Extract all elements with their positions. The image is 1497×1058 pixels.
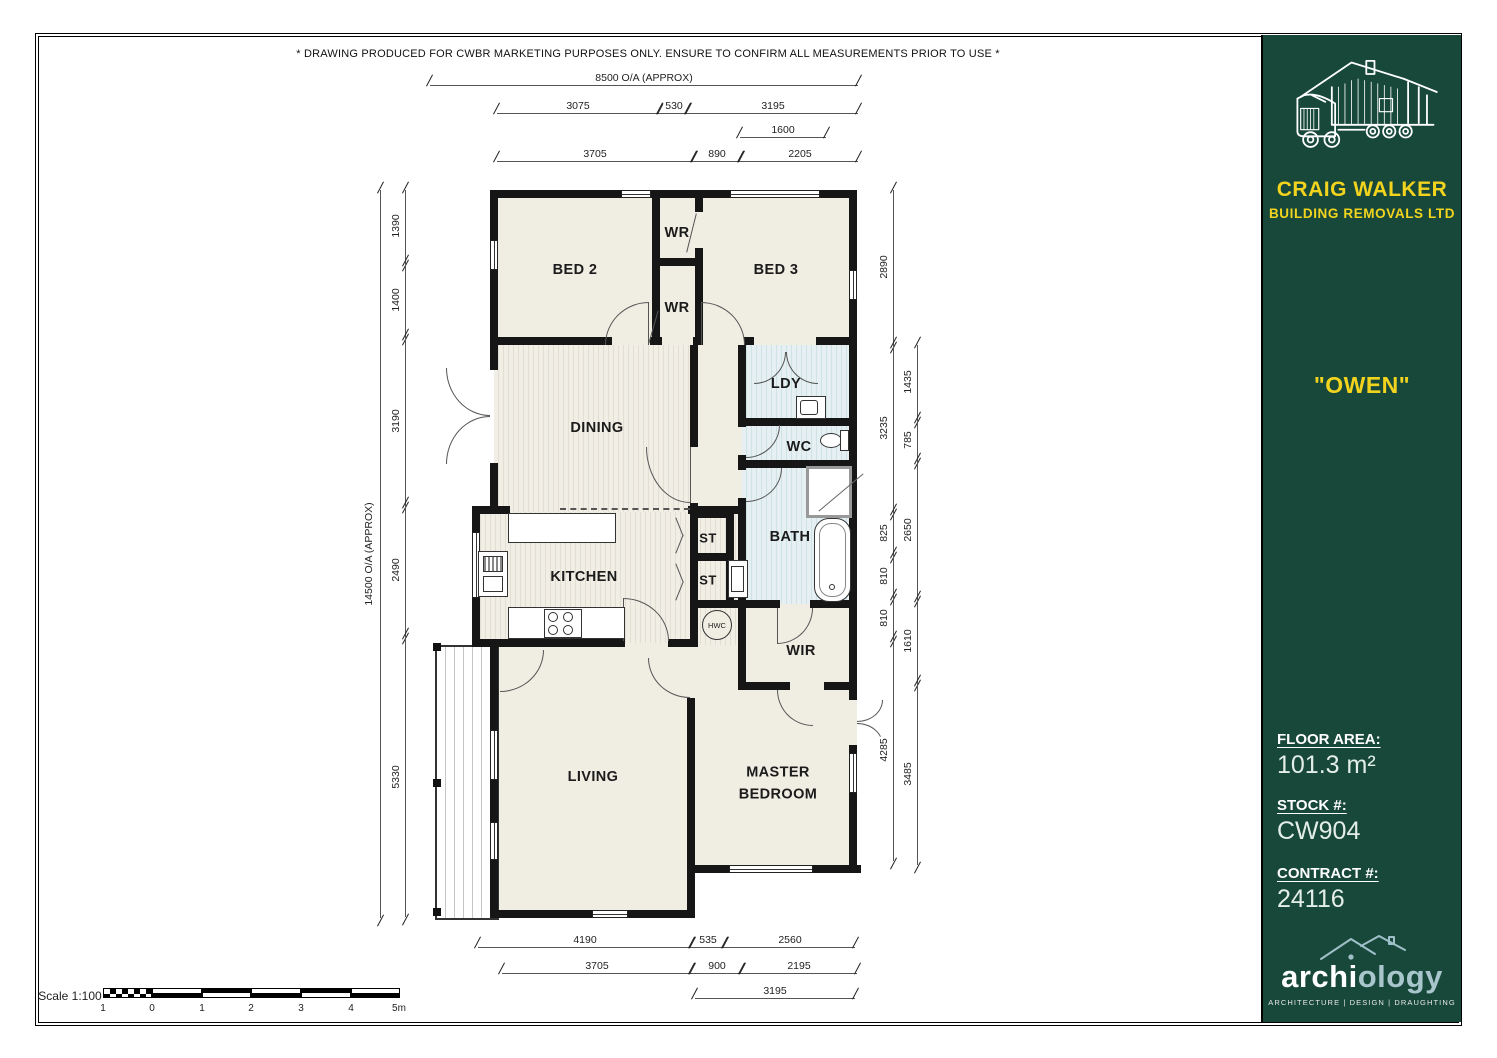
g: [1338, 79, 1397, 124]
dlab: 1600: [769, 124, 796, 136]
dim-v: [917, 599, 918, 683]
dim-v: [405, 505, 406, 636]
fx: [483, 576, 503, 592]
room-label-living: LIVING: [568, 769, 619, 785]
archiology-wordmark: archiology: [1263, 959, 1461, 995]
wall: [490, 910, 592, 918]
sb-seg: [202, 988, 251, 998]
dim-v: [893, 639, 894, 861]
wall: [490, 860, 498, 918]
shower: [806, 466, 852, 518]
window: [592, 910, 628, 918]
dlab: 3195: [761, 985, 788, 997]
leaf: [690, 447, 691, 503]
dimension-label: 8500 O/A (APPROX): [593, 72, 694, 84]
contract-label: CONTRACT #:: [1277, 865, 1379, 882]
span: archi: [1281, 959, 1358, 994]
circle: [1367, 125, 1379, 137]
kitchen-bench: [508, 513, 616, 543]
dlab-v: 2490: [390, 556, 402, 583]
company-name: CRAIG WALKER: [1263, 178, 1461, 202]
sb-num: 4: [348, 1003, 354, 1014]
room-label-dining: DINING: [570, 420, 623, 436]
wall: [695, 198, 703, 212]
dlab-v: 3190: [390, 407, 402, 434]
dlab: 4190: [571, 934, 598, 946]
g: [1321, 936, 1405, 959]
dlab-v: 3485: [902, 760, 914, 787]
wall: [626, 910, 695, 918]
toilet: [820, 433, 842, 448]
window: [729, 865, 813, 873]
dlab-v: 3235: [878, 414, 890, 441]
floor-area-value: 101.3 m²: [1277, 751, 1376, 780]
dlab: 890: [706, 148, 728, 160]
window: [849, 753, 857, 793]
title-block-panel: CRAIG WALKER BUILDING REMOVALS LTD "OWEN…: [1261, 35, 1461, 1022]
bedrooms-floor: [494, 194, 857, 345]
circle: [1370, 129, 1375, 134]
dim-v: [917, 345, 918, 420]
dim-h: [694, 161, 741, 162]
dlab: 3075: [564, 100, 591, 112]
wall: [738, 608, 746, 690]
dlab-v: 825: [878, 522, 890, 544]
dashed-opening: [560, 508, 690, 510]
floor-area-label: FLOOR AREA:: [1277, 731, 1381, 748]
fx: [563, 625, 573, 635]
dim-line: [430, 85, 858, 86]
wall: [476, 639, 625, 647]
company-logo-truck-house-icon: [1281, 49, 1445, 167]
window: [490, 822, 498, 860]
circle: [1403, 129, 1408, 134]
wall: [687, 698, 695, 914]
room-label-bed3: BED 3: [754, 262, 799, 278]
wall: [738, 345, 746, 427]
deck-post: [433, 908, 441, 916]
wall: [490, 345, 498, 370]
wall: [490, 270, 498, 345]
sb-seg: [351, 988, 400, 998]
room-label-wr-top: WR: [665, 225, 690, 241]
dlab: 535: [697, 934, 719, 946]
fx: [548, 625, 558, 635]
polyline: [1301, 62, 1404, 96]
room-label-wc: WC: [787, 439, 812, 455]
window: [621, 190, 651, 198]
window: [730, 190, 820, 198]
hwc-cylinder: HWC: [702, 610, 732, 640]
wall: [744, 337, 754, 345]
dlab-v: 1435: [902, 368, 914, 395]
dlab-v: 810: [878, 565, 890, 587]
dlab-v: 14500 O/A (APPROX): [363, 500, 375, 607]
g: [1297, 61, 1436, 147]
wall: [742, 682, 790, 690]
stock-value: CW904: [1277, 817, 1360, 846]
wall: [690, 345, 698, 447]
dim-h: [497, 161, 694, 162]
dim-h: [725, 947, 855, 948]
sb-num: 2: [248, 1003, 254, 1014]
dim-h: [692, 973, 742, 974]
company-subtitle: BUILDING REMOVALS LTD: [1263, 206, 1461, 221]
dim-h: [688, 113, 858, 114]
room-label-st2: ST: [699, 573, 716, 588]
span: ology: [1358, 959, 1443, 994]
dlab-v: 5330: [390, 763, 402, 790]
circle: [1308, 137, 1314, 143]
dlab: 900: [706, 960, 728, 972]
dlab-v: 1390: [390, 212, 402, 239]
sb-seg: [301, 988, 351, 998]
sb-seg: [152, 988, 202, 998]
scale-label: Scale 1:100: [36, 989, 103, 1003]
wall: [472, 512, 480, 532]
fx: [829, 584, 835, 590]
circle: [1303, 132, 1318, 147]
dim-v: [405, 263, 406, 337]
circle: [1387, 129, 1392, 134]
fx: [548, 612, 558, 622]
span: HWC: [708, 621, 726, 630]
dim-line: [478, 947, 692, 948]
dim-h: [741, 161, 858, 162]
deck-post: [433, 779, 441, 787]
wall: [849, 190, 857, 270]
wall: [490, 190, 498, 242]
dim-h: [502, 973, 692, 974]
wall: [668, 639, 698, 647]
g: [1304, 108, 1314, 129]
deck-post: [433, 643, 441, 651]
dim-line: [380, 190, 381, 918]
sb-num: 1: [100, 1003, 106, 1014]
disclaimer-text: * DRAWING PRODUCED FOR CWBR MARKETING PU…: [35, 48, 1261, 60]
sb-num: 5m: [392, 1003, 406, 1014]
circle: [1383, 125, 1395, 137]
dim-h: [742, 973, 857, 974]
dlab: 3195: [759, 100, 786, 112]
wall: [472, 598, 480, 647]
leaf: [701, 302, 702, 345]
scale-bar: [103, 988, 152, 998]
wall: [690, 503, 698, 639]
dim-v: [917, 683, 918, 865]
window: [490, 240, 498, 270]
dim-v: [405, 190, 406, 263]
toilet-tank: [840, 430, 849, 451]
leaf: [777, 608, 778, 644]
stock-label: STOCK #:: [1277, 797, 1347, 814]
wall: [490, 780, 498, 822]
dlab: 3705: [583, 960, 610, 972]
contract-value: 24116: [1277, 885, 1345, 914]
polyline: [1361, 936, 1405, 950]
window: [849, 270, 857, 300]
room-label-kitchen: KITCHEN: [550, 569, 617, 585]
room-label-bath: BATH: [770, 529, 811, 545]
circle: [1324, 132, 1339, 147]
dim-line: [893, 190, 894, 345]
wall: [738, 455, 746, 470]
fx: [800, 400, 818, 415]
dim-h: [497, 113, 660, 114]
dlab-v: 2650: [902, 516, 914, 543]
wall: [490, 337, 612, 345]
window: [490, 730, 498, 780]
dlab-v: 810: [878, 607, 890, 629]
room-label-wr-bottom: WR: [665, 300, 690, 316]
dlab-v: 1400: [390, 286, 402, 313]
sb-seg: [251, 988, 301, 998]
dim-h: [695, 998, 855, 999]
fx: [731, 566, 744, 592]
dim-v: [893, 345, 894, 512]
dlab: 530: [663, 100, 685, 112]
sb-num: 0: [149, 1003, 155, 1014]
wall: [849, 793, 857, 869]
dim-h: [740, 137, 826, 138]
dlab-v: 785: [902, 429, 914, 451]
dim-v: [405, 636, 406, 917]
circle: [1399, 125, 1411, 137]
dim-v: [405, 337, 406, 505]
room-label-wir: WIR: [786, 643, 815, 659]
dim-v: [917, 461, 918, 599]
dlab-v: 2890: [878, 253, 890, 280]
dlab: 3705: [581, 148, 608, 160]
circle: [1329, 137, 1335, 143]
dlab: 2205: [786, 148, 813, 160]
floor-plan-sheet: * DRAWING PRODUCED FOR CWBR MARKETING PU…: [0, 0, 1497, 1058]
room-label-master: MASTER BEDROOM: [723, 762, 833, 806]
dlab-v: 4285: [878, 736, 890, 763]
sb-num: 1: [199, 1003, 205, 1014]
dlab: 2195: [785, 960, 812, 972]
wall: [849, 608, 857, 700]
fx: [483, 556, 503, 572]
room-label-st1: ST: [699, 531, 716, 546]
rect: [1301, 108, 1319, 129]
wall: [490, 463, 498, 514]
sb-num: 3: [298, 1003, 304, 1014]
wall: [490, 647, 498, 730]
fx: [563, 612, 573, 622]
plan-name: "OWEN": [1263, 372, 1461, 399]
dlab: 2560: [776, 934, 803, 946]
room-label-bed2: BED 2: [553, 262, 598, 278]
archiology-tagline: ARCHITECTURE | DESIGN | DRAUGHTING: [1263, 998, 1461, 1007]
dlab-v: 1610: [902, 627, 914, 654]
room-label-ldy: LDY: [771, 376, 801, 392]
